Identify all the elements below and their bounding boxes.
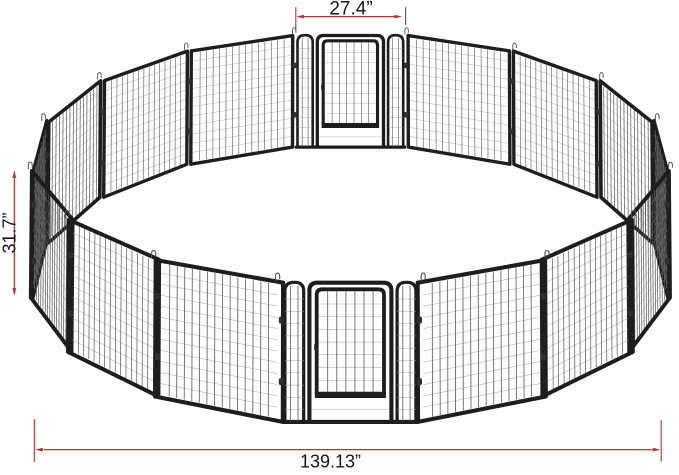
- svg-text:31.7”: 31.7”: [0, 212, 20, 253]
- svg-text:139.13”: 139.13”: [300, 452, 361, 471]
- svg-text:27.4”: 27.4”: [329, 0, 372, 20]
